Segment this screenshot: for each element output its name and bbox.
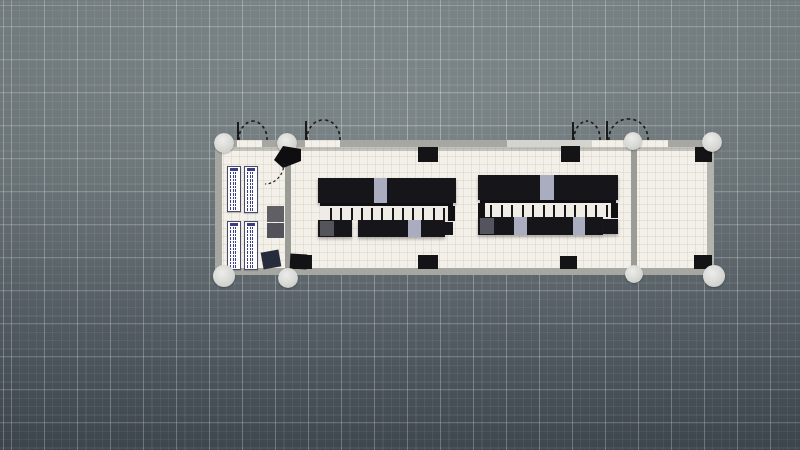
- rack-divider: [595, 205, 597, 217]
- rack-slot-light: [374, 178, 387, 203]
- aisle-end-cap: [478, 203, 485, 218]
- legend-row: [247, 248, 255, 251]
- legend-row: [247, 241, 255, 244]
- rack-divider: [351, 208, 353, 220]
- rack-slot-light: [573, 217, 585, 235]
- legend-table-3: [227, 221, 241, 270]
- rack-divider: [574, 205, 576, 217]
- rack-row-left-bottom-b: [358, 220, 445, 237]
- rack-slot-dark: [320, 221, 334, 236]
- legend-row: [247, 201, 255, 204]
- rack-divider: [412, 208, 414, 220]
- legend-table-2: [244, 166, 258, 213]
- aisle-end-cap: [611, 203, 618, 218]
- floor-plan: [0, 0, 800, 450]
- rack-divider: [543, 205, 545, 217]
- legend-row: [230, 244, 238, 247]
- round-column-top-right-1: [624, 132, 642, 150]
- legend-row: [230, 241, 238, 244]
- legend-row: [230, 200, 238, 203]
- legend-row: [247, 230, 255, 233]
- legend-row: [230, 168, 238, 171]
- round-column-top-right-2: [702, 132, 722, 152]
- legend-row: [247, 265, 255, 268]
- rack-divider: [402, 208, 404, 220]
- wall-inner-left: [285, 150, 291, 268]
- rack-divider: [392, 208, 394, 220]
- wall-left: [215, 140, 222, 275]
- round-column-bottom-left-1: [213, 265, 235, 287]
- legend-row: [230, 182, 238, 185]
- legend-row: [247, 183, 255, 186]
- rack-divider: [522, 205, 524, 217]
- rack-row-right-bottom-b: [603, 219, 618, 234]
- wall-top-3: [340, 140, 507, 147]
- legend-row: [247, 186, 255, 189]
- legend-row: [230, 248, 238, 251]
- legend-row: [230, 172, 238, 175]
- legend-row: [247, 168, 255, 171]
- legend-row: [247, 244, 255, 247]
- rack-divider: [490, 205, 492, 217]
- rack-divider: [330, 208, 332, 220]
- legend-row: [247, 208, 255, 211]
- viewport-canvas[interactable]: [0, 0, 800, 450]
- rack-divider: [511, 205, 513, 217]
- equipment-box-black: [290, 254, 308, 270]
- legend-row: [230, 255, 238, 258]
- legend-row: [230, 175, 238, 178]
- wall-inner-right: [631, 147, 637, 268]
- rack-divider: [433, 208, 435, 220]
- legend-row: [247, 237, 255, 240]
- legend-row: [230, 179, 238, 182]
- legend-row: [247, 255, 255, 258]
- round-column-top-left-1: [214, 133, 234, 153]
- rack-divider: [501, 205, 503, 217]
- legend-row: [230, 193, 238, 196]
- rack-slot-light: [514, 217, 527, 235]
- legend-row: [247, 175, 255, 178]
- legend-row: [247, 258, 255, 261]
- legend-row: [247, 227, 255, 230]
- pillar-top-1: [418, 147, 438, 162]
- pillar-top-2: [561, 146, 580, 162]
- rack-divider: [606, 205, 608, 217]
- rack-divider: [422, 208, 424, 220]
- round-column-bottom-left-2: [278, 268, 298, 288]
- round-column-top-left-2: [277, 133, 297, 153]
- pillar-bottom-2: [418, 255, 438, 269]
- containment-aisle-right: [480, 200, 616, 217]
- rack-stub: [445, 222, 453, 235]
- legend-row: [247, 194, 255, 197]
- legend-row: [230, 197, 238, 200]
- rack-divider: [564, 205, 566, 217]
- aisle-end-cap: [448, 206, 455, 221]
- legend-row: [230, 237, 238, 240]
- legend-row: [230, 186, 238, 189]
- legend-row: [247, 205, 255, 208]
- equipment-box-navy: [261, 250, 282, 270]
- legend-row: [230, 258, 238, 261]
- rack-slot-light: [540, 175, 554, 200]
- legend-row: [247, 234, 255, 237]
- legend-row: [247, 179, 255, 182]
- legend-row: [230, 207, 238, 210]
- legend-table-1: [227, 166, 241, 212]
- legend-row: [230, 223, 238, 226]
- legend-row: [230, 189, 238, 192]
- rack-divider: [532, 205, 534, 217]
- legend-row: [247, 223, 255, 226]
- legend-row: [247, 262, 255, 265]
- legend-row: [247, 190, 255, 193]
- rack-slot-dark: [480, 218, 494, 234]
- rack-divider: [361, 208, 363, 220]
- rack-row-left-top: [318, 178, 456, 203]
- rack-divider: [585, 205, 587, 217]
- rack-divider: [553, 205, 555, 217]
- rack-divider: [371, 208, 373, 220]
- legend-row: [247, 251, 255, 254]
- equipment-box-gray-2: [267, 223, 284, 238]
- round-column-bottom-right-1: [625, 265, 643, 283]
- rack-divider: [381, 208, 383, 220]
- pillar-bottom-3: [560, 256, 577, 269]
- containment-aisle-left: [320, 203, 453, 220]
- legend-row: [230, 251, 238, 254]
- equipment-box-gray-1: [267, 206, 284, 222]
- rack-divider: [443, 208, 445, 220]
- legend-row: [230, 204, 238, 207]
- round-column-bottom-right-2: [703, 265, 725, 287]
- rack-divider: [340, 208, 342, 220]
- legend-row: [230, 262, 238, 265]
- legend-row: [247, 197, 255, 200]
- legend-row: [230, 234, 238, 237]
- legend-row: [230, 227, 238, 230]
- legend-row: [247, 172, 255, 175]
- rack-slot-light: [408, 220, 421, 237]
- legend-table-4: [244, 221, 258, 270]
- legend-row: [230, 230, 238, 233]
